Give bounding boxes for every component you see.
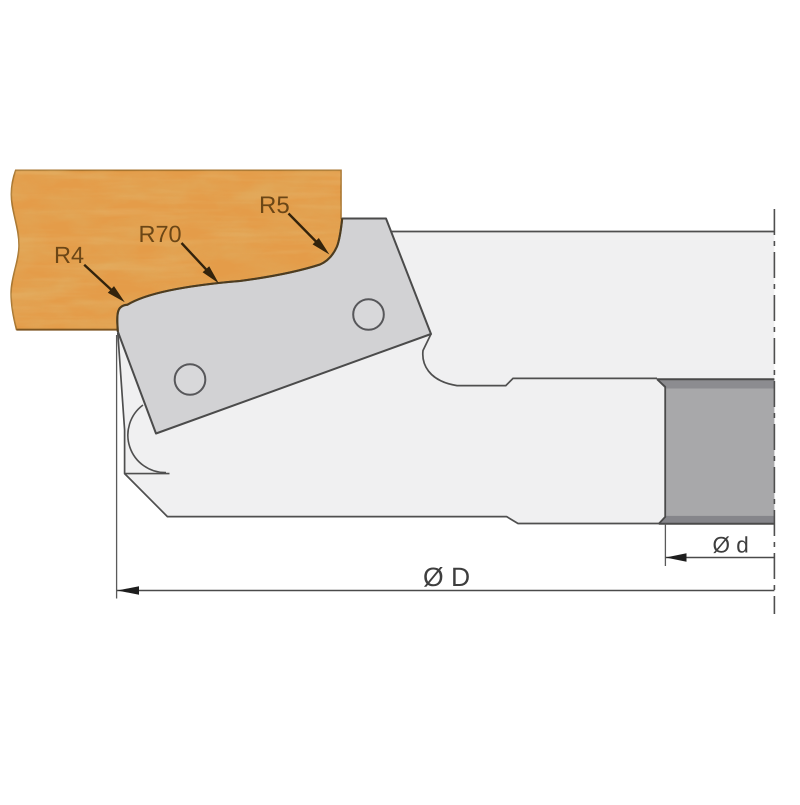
- svg-text:Ø d: Ø d: [713, 533, 749, 558]
- svg-text:R70: R70: [139, 221, 182, 247]
- svg-text:R5: R5: [259, 192, 290, 219]
- svg-text:R4: R4: [54, 242, 84, 268]
- svg-text:Ø D: Ø D: [423, 562, 470, 592]
